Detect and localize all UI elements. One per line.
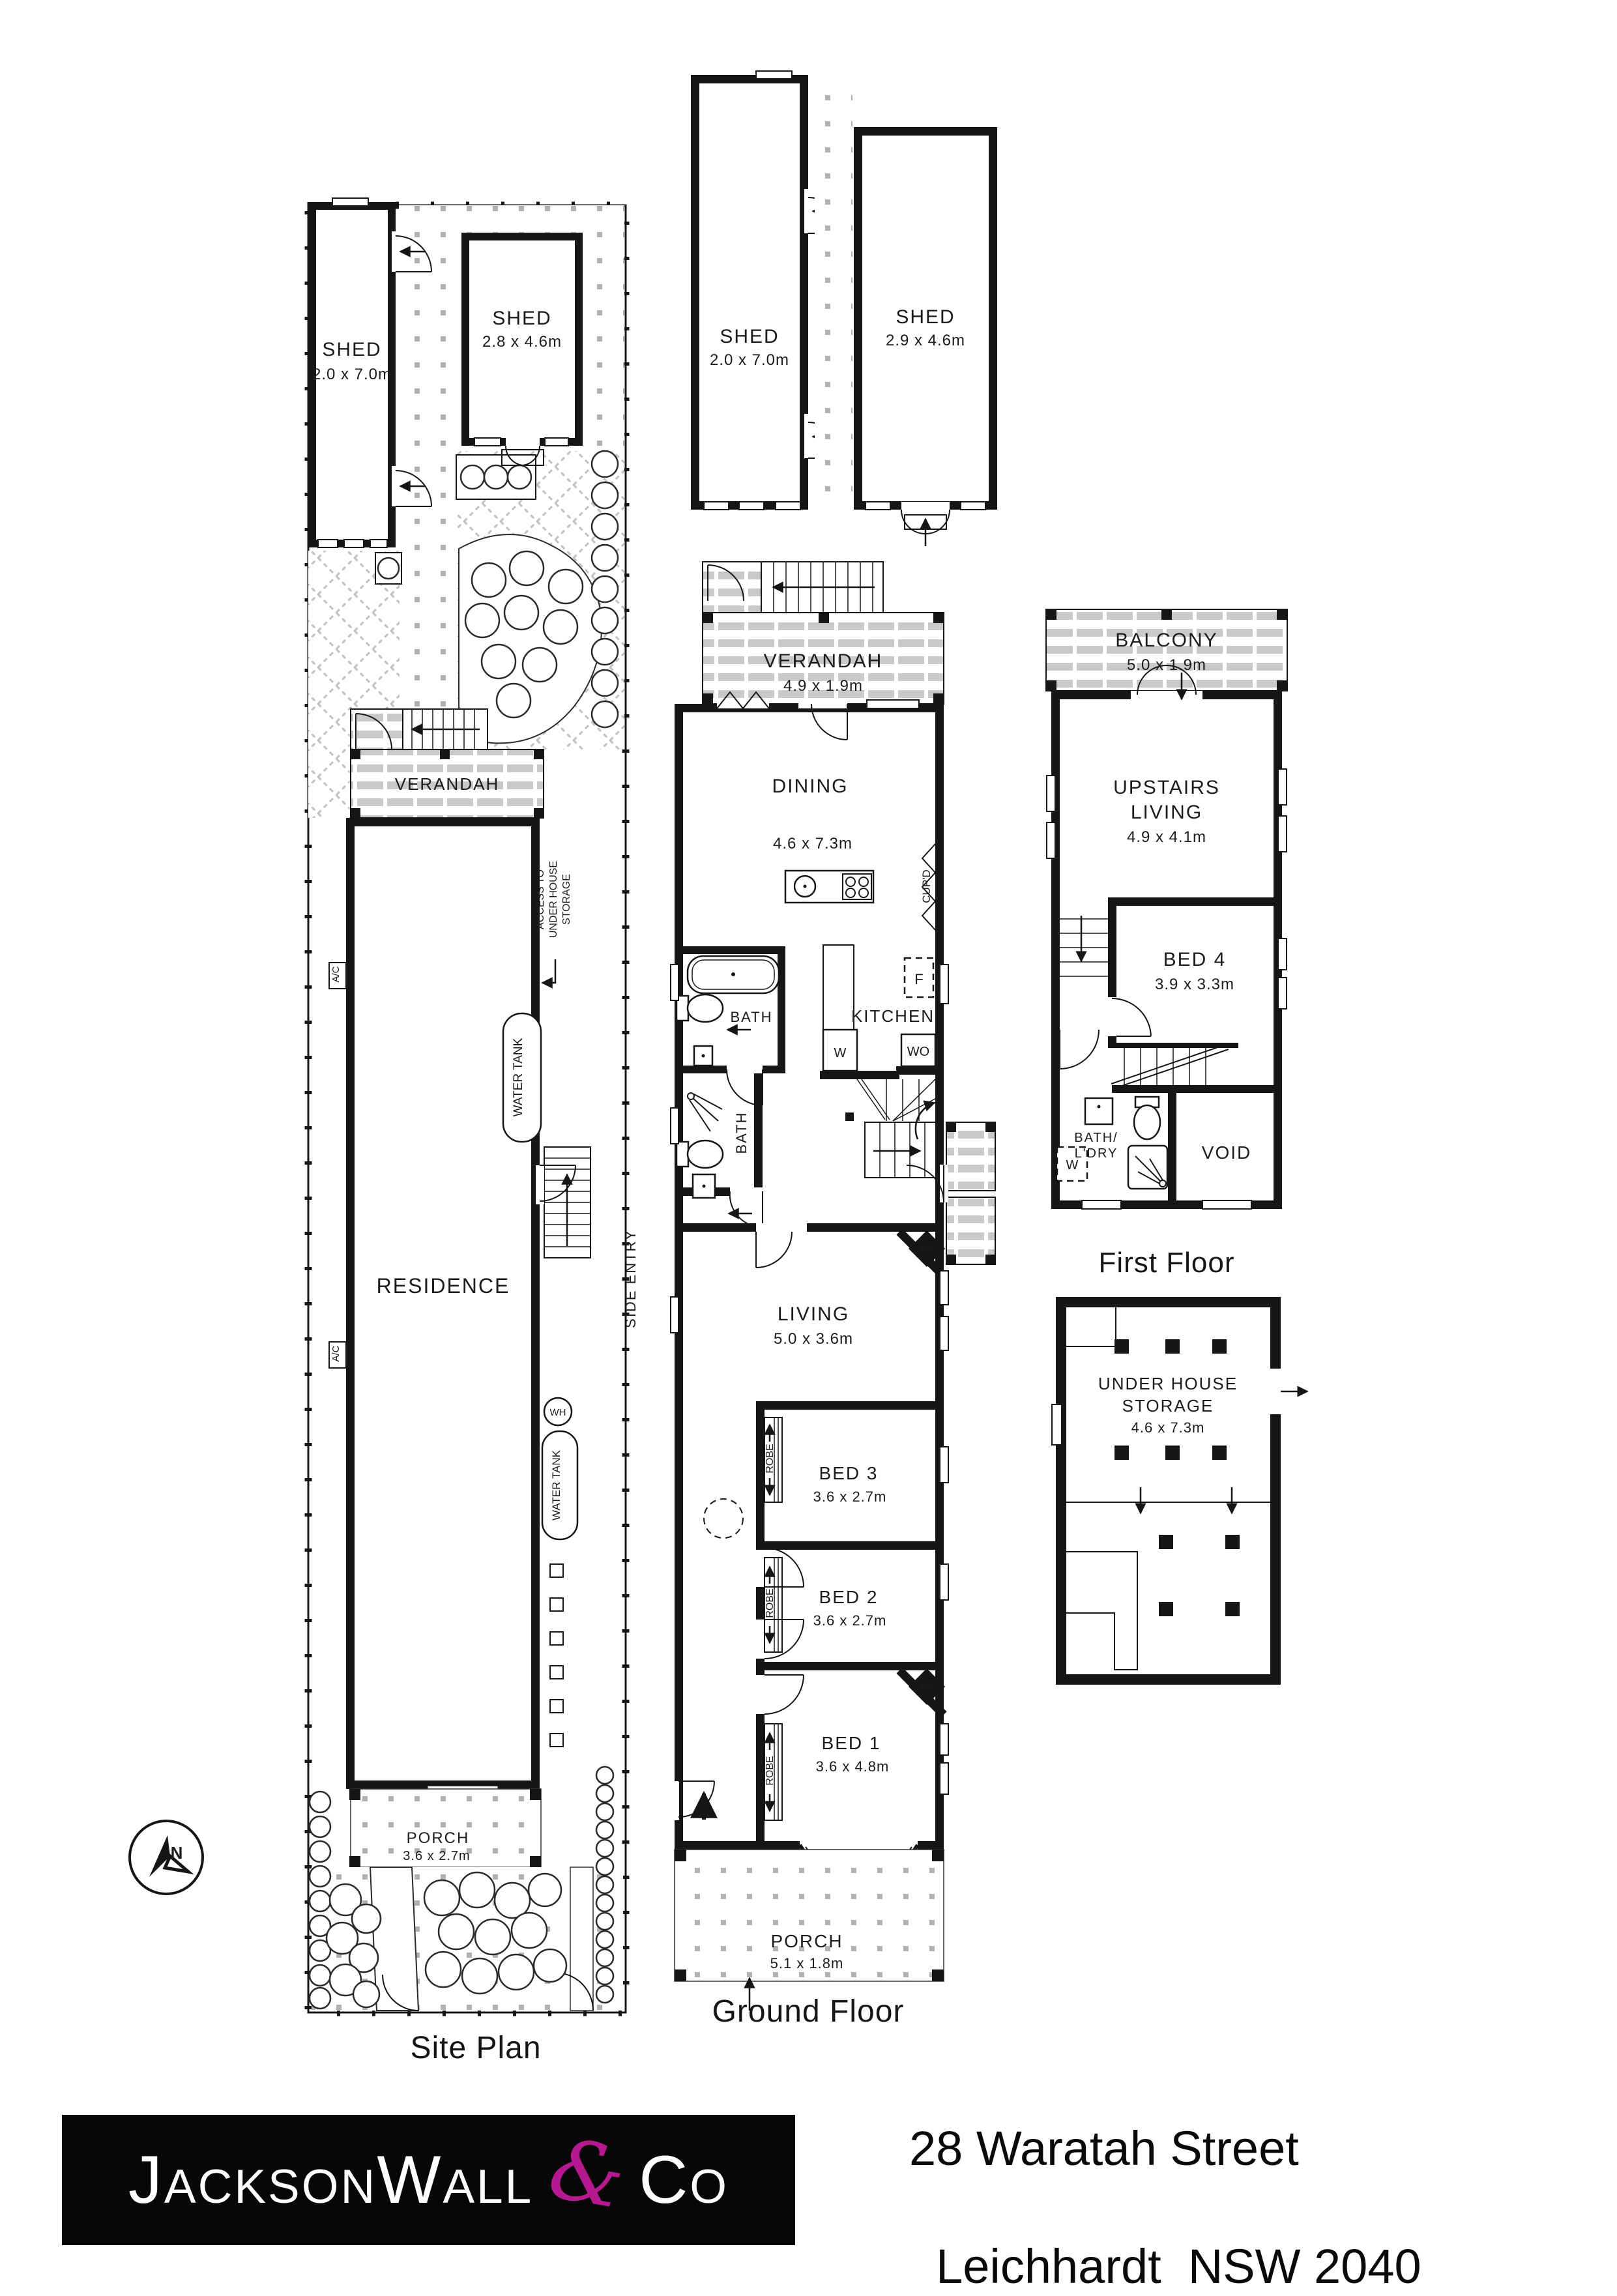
site-plan: SHED 2.0 x 7.0m SHED 2.8 x 4.6m VERANDAH… — [117, 65, 652, 2072]
compass-n-label: N — [171, 1843, 183, 1863]
gf-shed-right: SHED 2.9 x 4.6m — [858, 132, 993, 547]
first-floor-plan: BALCONY 5.0 x 1.9m UPSTAIRS LIVING 4.9 x… — [1017, 574, 1330, 1303]
gf-shed-left-label: SHED — [720, 326, 779, 347]
site-water-tank-2: WATER TANK — [542, 1431, 577, 1539]
site-ac-label-1: A/C — [330, 966, 342, 982]
ff-void-label: VOID — [1202, 1142, 1251, 1163]
gf-bath-front-label: BATH — [730, 1009, 772, 1025]
site-porch: PORCH 3.6 x 2.7m — [349, 1789, 541, 1867]
gf-bed1-robe-label: ROBE — [765, 1756, 776, 1785]
gf-bed3-robe-label: ROBE — [765, 1444, 776, 1473]
site-water-tank-2-label: WATER TANK — [550, 1449, 562, 1520]
gf-bed2-robe-label: ROBE — [765, 1588, 776, 1618]
gf-bath-rear-label: BATH — [733, 1111, 750, 1154]
gf-verandah: VERANDAH 4.9 x 1.9m — [703, 562, 944, 704]
ground-floor-title: Ground Floor — [712, 1994, 905, 2029]
north-compass-icon: N — [130, 1821, 203, 1894]
site-side-entry-door — [536, 1165, 575, 1204]
gf-shed-left-dims: 2.0 x 7.0m — [710, 351, 789, 369]
gf-bed3-dims: 3.6 x 2.7m — [813, 1489, 887, 1505]
agency-logo: Jackson Wall & Co — [62, 2115, 795, 2245]
gf-living-dims: 5.0 x 3.6m — [774, 1330, 853, 1348]
ff-balcony-label: BALCONY — [1115, 630, 1217, 651]
gf-kitchen-label: KITCHEN — [851, 1006, 935, 1026]
gf-dining-label: DINING — [772, 776, 849, 797]
gf-fridge-label: F — [914, 971, 923, 987]
site-shed-left-dims: 2.0 x 7.0m — [312, 366, 392, 383]
site-porch-dims: 3.6 x 2.7m — [403, 1849, 470, 1863]
uh-outline — [1061, 1302, 1275, 1679]
brand-name-part2: Wall — [377, 2146, 533, 2214]
access-line2: UNDER HOUSE — [548, 861, 559, 938]
gf-living-label: LIVING — [778, 1303, 849, 1325]
property-address: 28 Waratah Street Leichhardt NSW 2040 — [909, 2119, 1421, 2296]
site-wh-label: WH — [550, 1407, 566, 1418]
brand-name-part1: Jackson — [128, 2146, 377, 2214]
gf-washer-label: W — [834, 1046, 847, 1060]
ff-bed4-dims: 3.9 x 3.3m — [1155, 976, 1234, 993]
gf-wall-oven-label: WO — [907, 1045, 929, 1059]
gf-kitchen-island — [785, 871, 873, 903]
brand-name-part3: Co — [639, 2146, 729, 2214]
uh-label-line1: UNDER HOUSE — [1098, 1374, 1238, 1393]
gf-bed1-dims: 3.6 x 4.8m — [816, 1758, 890, 1775]
gf-hall-fixtures — [694, 1046, 712, 1066]
site-water-tank-1: WATER TANK — [503, 1013, 541, 1142]
uh-dims: 4.6 x 7.3m — [1131, 1419, 1205, 1436]
site-access-under-house: ACCESS TO UNDER HOUSE STORAGE — [535, 861, 572, 983]
gf-porch-label: PORCH — [770, 1931, 843, 1951]
brand-ampersand-icon: & — [544, 2127, 631, 2222]
site-stepping-stones — [550, 1564, 563, 1747]
site-verandah-label: VERANDAH — [395, 774, 499, 794]
gf-dining-dims: 4.6 x 7.3m — [773, 835, 852, 852]
site-shed-right: SHED 2.8 x 4.6m — [465, 237, 579, 465]
gf-porch: PORCH 5.1 x 1.8m — [675, 1850, 944, 2011]
gf-bed2-label: BED 2 — [819, 1587, 879, 1607]
ff-upstairs-living-line2: LIVING — [1131, 802, 1202, 823]
ff-bed4-label: BED 4 — [1163, 949, 1227, 970]
gf-shed-right-label: SHED — [896, 306, 955, 328]
site-shed-right-dims: 2.8 x 4.6m — [482, 333, 562, 351]
gf-bed3-label: BED 3 — [819, 1463, 879, 1483]
gf-path-dots — [815, 75, 852, 510]
site-side-stairs — [544, 1147, 590, 1258]
gf-cupboard-label: CUP'D — [920, 869, 933, 903]
site-side-entry-label: SIDE ENTRY — [622, 1229, 639, 1328]
gf-shed-right-dims: 2.9 x 4.6m — [886, 332, 965, 349]
uh-label-line2: STORAGE — [1122, 1396, 1214, 1416]
under-house-storage-plan: UNDER HOUSE STORAGE 4.6 x 7.3m — [1017, 1284, 1330, 1701]
site-porch-label: PORCH — [407, 1829, 470, 1847]
ff-bath-laundry-line2: L'DRY — [1075, 1146, 1118, 1161]
site-plan-title: Site Plan — [410, 2031, 541, 2065]
gf-verandah-dims: 4.9 x 1.9m — [783, 677, 863, 695]
gf-porch-dims: 5.1 x 1.8m — [770, 1955, 844, 1971]
gf-living-fp-label: FP — [920, 1245, 933, 1256]
site-shed-left-label: SHED — [322, 339, 381, 360]
ff-upstairs-living-dims: 4.9 x 4.1m — [1127, 828, 1206, 846]
access-line1: ACCESS TO — [535, 869, 546, 929]
gf-bed1-label: BED 1 — [822, 1733, 881, 1753]
site-ac-label-2: A/C — [330, 1345, 342, 1361]
first-floor-title: First Floor — [1099, 1247, 1235, 1279]
access-line3: STORAGE — [561, 874, 572, 925]
ff-balcony: BALCONY 5.0 x 1.9m — [1046, 609, 1287, 691]
site-ac-units: A/C A/C — [329, 963, 346, 1368]
gf-bed1-fp-label: FP — [920, 1683, 933, 1694]
site-water-heater: WH — [544, 1398, 572, 1425]
address-line1: 28 Waratah Street — [909, 2121, 1299, 2175]
address-line2: Leichhardt NSW 2040 — [936, 2239, 1421, 2293]
ff-bath-laundry-line1: BATH/ — [1074, 1131, 1118, 1145]
site-residence-label: RESIDENCE — [377, 1274, 510, 1298]
ff-upstairs-living-line1: UPSTAIRS — [1113, 777, 1220, 798]
gf-bed2-dims: 3.6 x 2.7m — [813, 1612, 887, 1629]
site-shrub-under-shed — [375, 553, 401, 584]
ground-floor-plan: SHED 2.0 x 7.0m SHED 2.9 x 4.6m VERANDAH… — [658, 59, 1023, 2079]
site-shed-right-label: SHED — [492, 308, 551, 329]
uh-window-left — [1052, 1404, 1062, 1445]
site-tree-row-right — [592, 451, 618, 727]
site-planter-box — [456, 455, 536, 499]
uh-opening-right — [1270, 1369, 1307, 1414]
site-water-tank-1-label: WATER TANK — [512, 1038, 525, 1116]
gf-verandah-label: VERANDAH — [764, 650, 883, 672]
site-residence: RESIDENCE — [351, 822, 536, 1825]
